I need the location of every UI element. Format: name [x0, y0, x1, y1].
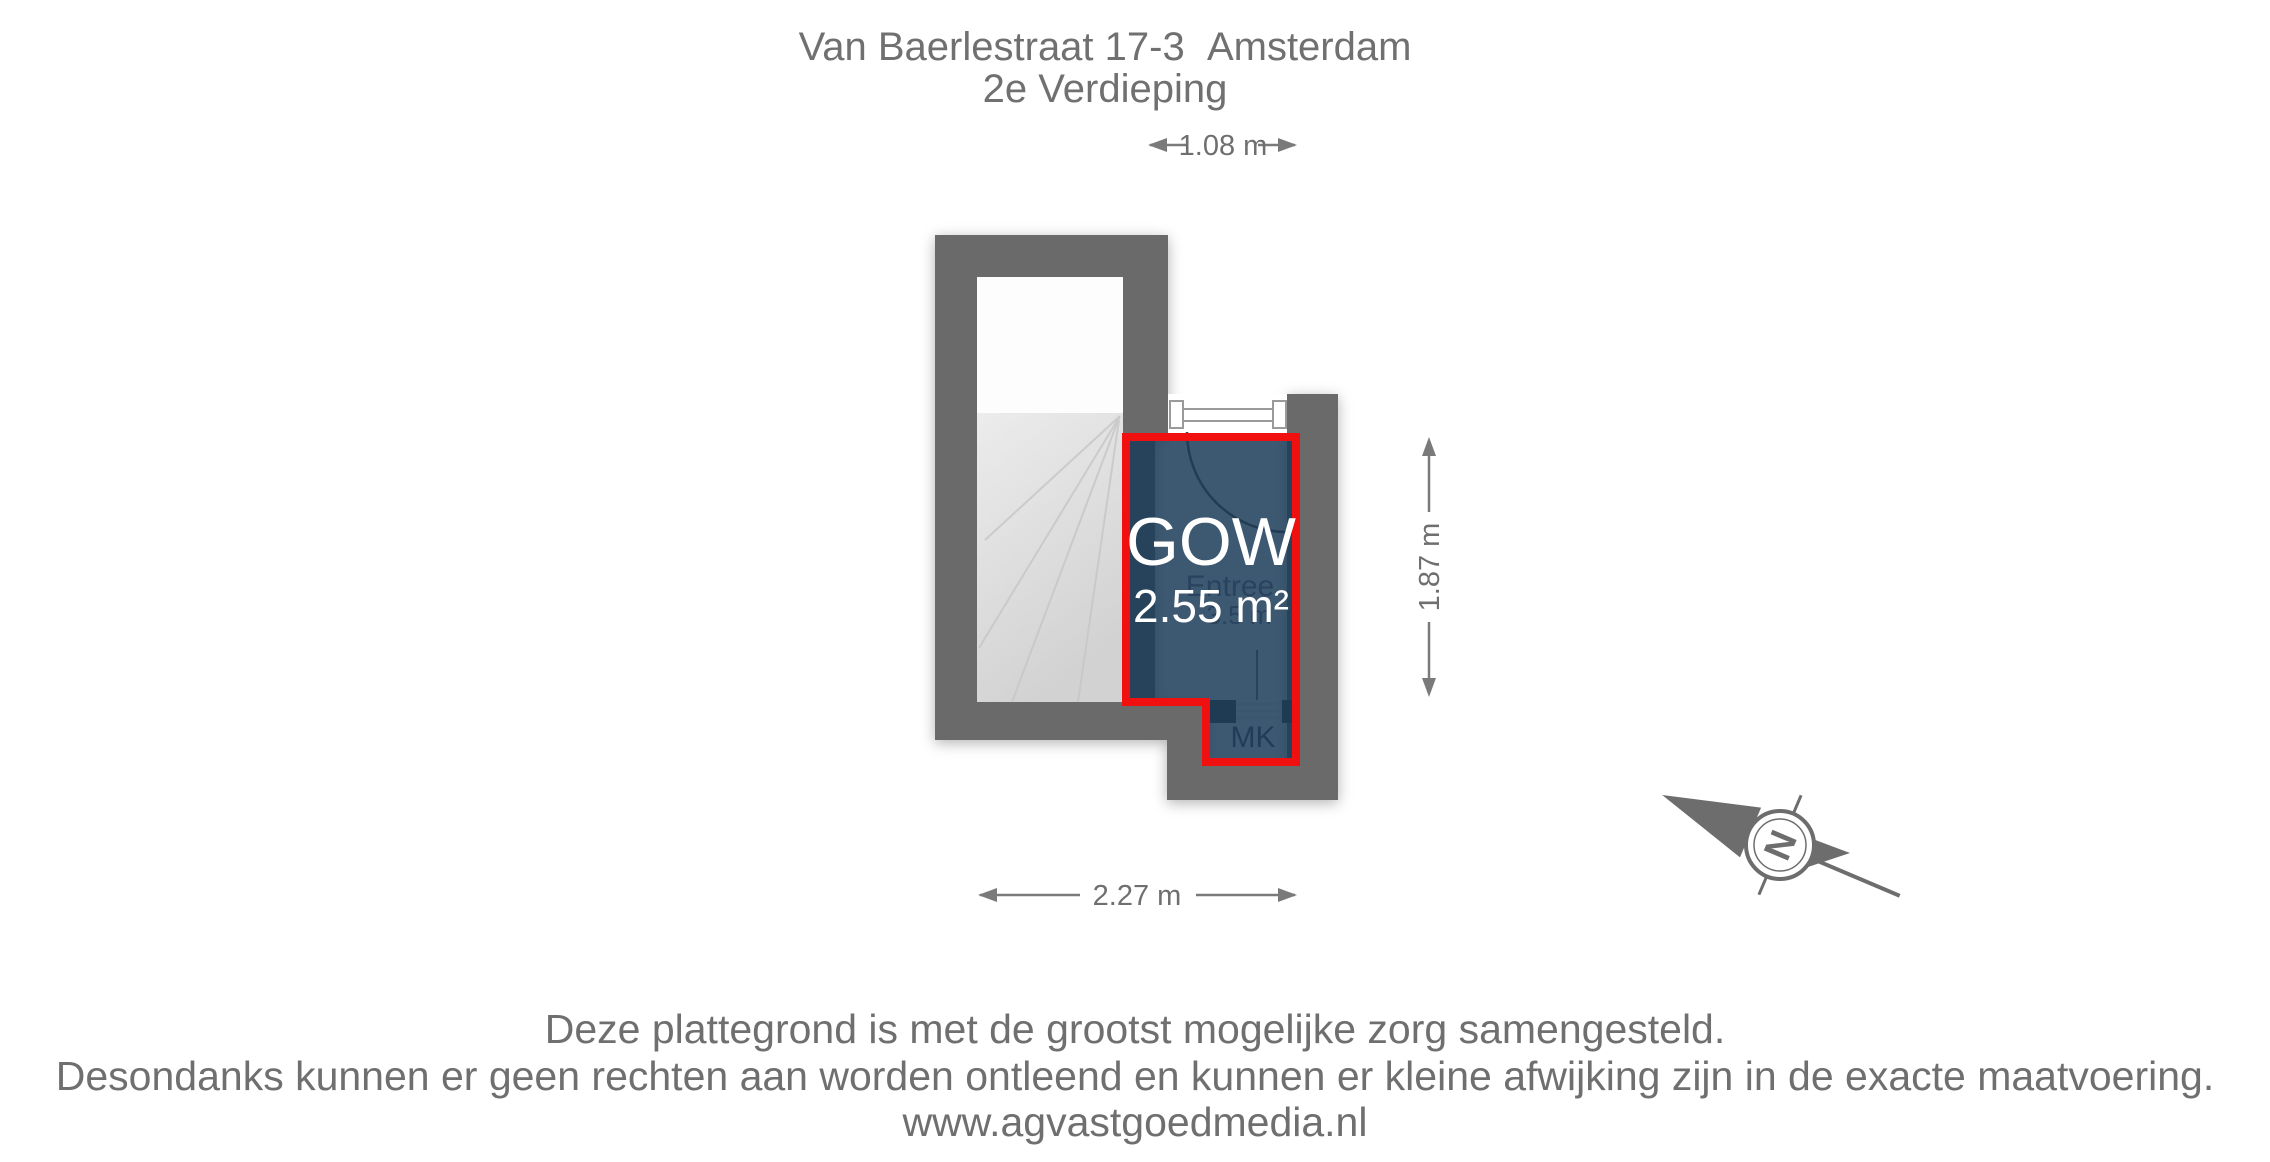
disclaimer-line-2: Desondanks kunnen er geen rechten aan wo…: [56, 1053, 2214, 1099]
meter-closet-label: MK: [1231, 721, 1276, 754]
dim-right-arrow-down: [1422, 678, 1436, 697]
door-threshold: [1168, 394, 1287, 436]
room-code-label: GOW: [1126, 504, 1296, 580]
dim-top-arrow-left: [1148, 138, 1167, 152]
dimension-bottom: 2.27 m: [978, 880, 1297, 912]
room-area-label: 2.55 m²: [1133, 580, 1289, 632]
compass-south-tail: [1813, 859, 1900, 896]
disclaimer-line-1: Deze plattegrond is met de grootst mogel…: [545, 1006, 1726, 1052]
dim-top-label: 1.08 m: [1179, 130, 1268, 162]
floorplan-canvas: Entree 3.5 m GOW 2.55 m² MK 1.08 m 1.87 …: [0, 0, 2270, 1162]
stairwell-left-wall: [935, 235, 977, 740]
threshold-floor: [1168, 394, 1287, 436]
door-post-left: [1170, 401, 1183, 428]
dim-top-arrow-right: [1278, 138, 1297, 152]
stairs-area: [977, 413, 1123, 702]
stairwell-interior: [977, 277, 1123, 702]
compass-rose-icon: N: [1641, 745, 1921, 945]
dim-bottom-arrow-right: [1278, 888, 1297, 902]
dim-right-arrow-up: [1422, 437, 1436, 456]
floorplan-page: Entree 3.5 m GOW 2.55 m² MK 1.08 m 1.87 …: [0, 0, 2270, 1162]
door-post-right: [1273, 401, 1286, 428]
stairwell-void: [977, 277, 1123, 413]
dim-bottom-label: 2.27 m: [1093, 880, 1182, 912]
dimension-top: 1.08 m: [1148, 130, 1297, 162]
page-subtitle: 2e Verdieping: [983, 67, 1228, 111]
stairwell-bottom-wall: [935, 702, 1168, 740]
dimension-right: 1.87 m: [1414, 437, 1446, 697]
disclaimer-website: www.agvastgoedmedia.nl: [902, 1099, 1368, 1145]
page-title: Van Baerlestraat 17-3 Amsterdam: [799, 25, 1412, 69]
stairwell-right-wall: [1123, 235, 1168, 436]
dim-right-label: 1.87 m: [1414, 523, 1446, 612]
dim-bottom-arrow-left: [978, 888, 997, 902]
